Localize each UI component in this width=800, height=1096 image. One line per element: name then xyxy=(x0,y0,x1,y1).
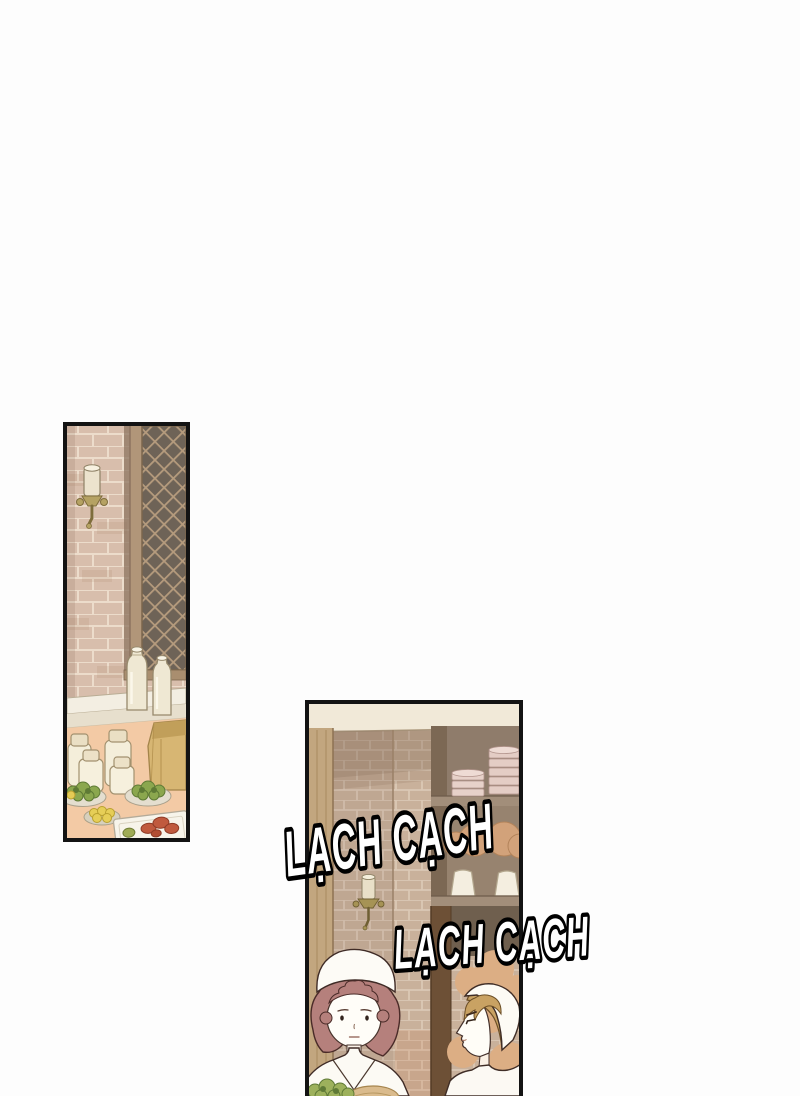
paper-bag xyxy=(148,720,186,790)
panel-kitchen-window xyxy=(63,422,190,842)
wood-pillar xyxy=(431,906,451,1096)
lattice-window xyxy=(124,426,186,680)
panel-kitchen-maids xyxy=(305,700,523,1096)
comic-page: LẠCH CẠCH LẠCH CẠCH xyxy=(0,0,800,1096)
